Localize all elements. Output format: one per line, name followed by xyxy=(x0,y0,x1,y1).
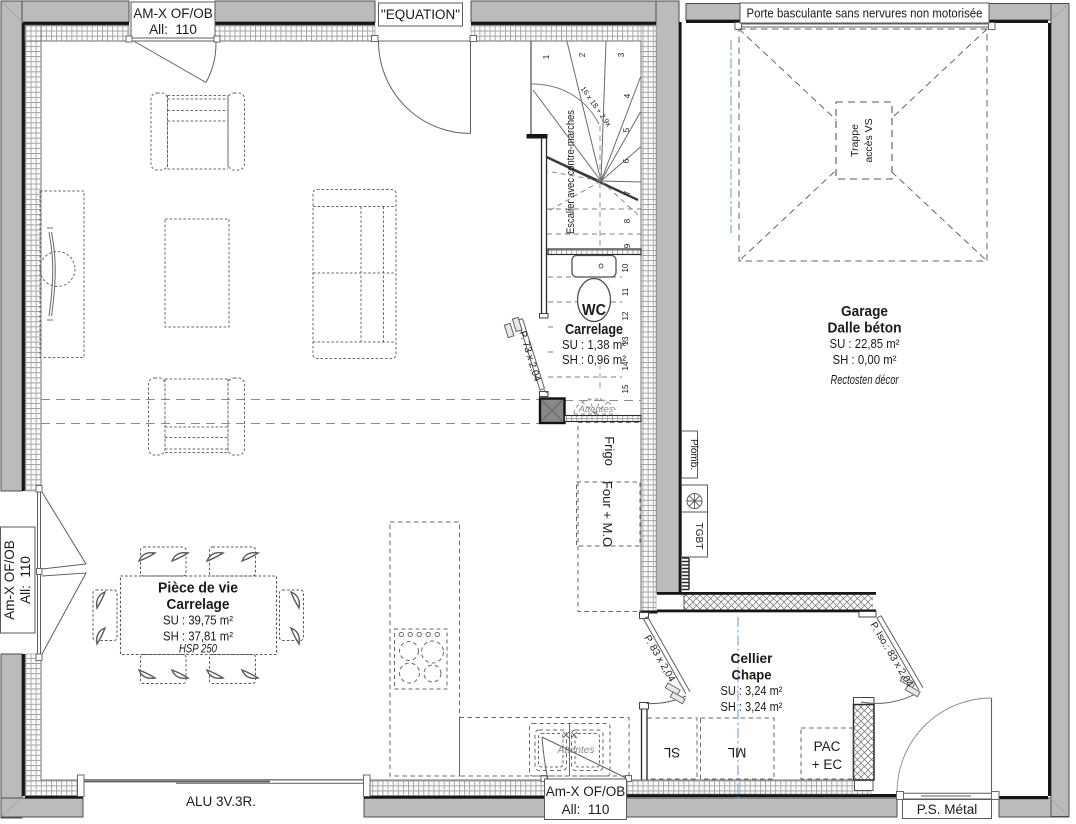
svg-text:HSP 250: HSP 250 xyxy=(179,644,217,656)
svg-text:Chape: Chape xyxy=(732,667,772,683)
svg-text:8: 8 xyxy=(623,218,632,223)
svg-text:All: 110: All: 110 xyxy=(562,802,610,817)
svg-text:5: 5 xyxy=(622,127,631,132)
svg-text:SH : 0,96 m²: SH : 0,96 m² xyxy=(562,353,626,367)
svg-text:SH : 37,81 m²: SH : 37,81 m² xyxy=(163,630,233,644)
svg-text:Four + M.O: Four + M.O xyxy=(600,481,615,547)
svg-text:Am-X OF/OB: Am-X OF/OB xyxy=(2,540,17,620)
svg-text:3: 3 xyxy=(617,52,626,57)
svg-text:Carrelage: Carrelage xyxy=(565,321,623,338)
svg-text:12: 12 xyxy=(621,311,630,320)
svg-text:SU : 39,75 m²: SU : 39,75 m² xyxy=(163,614,233,628)
svg-text:ML: ML xyxy=(727,745,746,760)
svg-text:Frigo: Frigo xyxy=(602,436,617,466)
svg-text:4: 4 xyxy=(623,93,632,98)
svg-text:PAC: PAC xyxy=(814,739,841,754)
svg-text:10: 10 xyxy=(621,263,630,272)
svg-text:ALU 3V.3R.: ALU 3V.3R. xyxy=(186,794,256,809)
svg-text:SL: SL xyxy=(663,745,680,760)
svg-text:7: 7 xyxy=(623,190,632,195)
svg-text:Garage: Garage xyxy=(841,304,888,320)
svg-text:6: 6 xyxy=(622,158,631,163)
svg-text:Plomb.: Plomb. xyxy=(688,439,699,470)
svg-text:SU : 22,85 m²: SU : 22,85 m² xyxy=(830,337,900,351)
svg-text:Pièce de vie: Pièce de vie xyxy=(158,581,238,597)
svg-text:SU : 3,24 m²: SU : 3,24 m² xyxy=(721,684,783,698)
svg-text:SU : 1,38 m²: SU : 1,38 m² xyxy=(562,338,626,352)
svg-text:Carrelage: Carrelage xyxy=(167,597,230,613)
svg-text:9: 9 xyxy=(623,243,632,248)
svg-text:Escalier avec contre-marches: Escalier avec contre-marches xyxy=(565,110,577,234)
svg-text:Am-X OF/OB: Am-X OF/OB xyxy=(546,784,626,799)
svg-text:+ EC: + EC xyxy=(812,757,843,772)
svg-text:11: 11 xyxy=(621,287,630,296)
svg-text:P.S. Métal: P.S. Métal xyxy=(917,802,978,817)
svg-text:SH : 3,24 m²: SH : 3,24 m² xyxy=(721,700,783,714)
svg-text:Trappe: Trappe xyxy=(849,124,861,157)
svg-text:accès VS: accès VS xyxy=(863,118,875,162)
svg-text:All: 110: All: 110 xyxy=(18,556,33,604)
svg-text:"EQUATION": "EQUATION" xyxy=(381,7,460,22)
svg-text:15: 15 xyxy=(621,384,630,393)
svg-text:AM-X OF/OB: AM-X OF/OB xyxy=(133,6,213,21)
svg-text:SH : 0,00 m²: SH : 0,00 m² xyxy=(833,353,897,367)
svg-text:Attentes: Attentes xyxy=(578,404,614,415)
svg-text:WC: WC xyxy=(582,302,606,319)
svg-text:Porte basculante sans nervures: Porte basculante sans nervures non motor… xyxy=(747,7,983,21)
svg-text:1: 1 xyxy=(542,54,551,59)
svg-text:Dalle béton: Dalle béton xyxy=(828,321,902,337)
svg-text:Attentes: Attentes xyxy=(557,745,595,756)
svg-text:TGBT: TGBT xyxy=(693,523,704,550)
svg-text:Cellier: Cellier xyxy=(731,650,774,666)
svg-text:Rectosten décor: Rectosten décor xyxy=(831,373,900,387)
svg-text:All: 110: All: 110 xyxy=(149,22,197,37)
svg-text:2: 2 xyxy=(578,52,587,57)
